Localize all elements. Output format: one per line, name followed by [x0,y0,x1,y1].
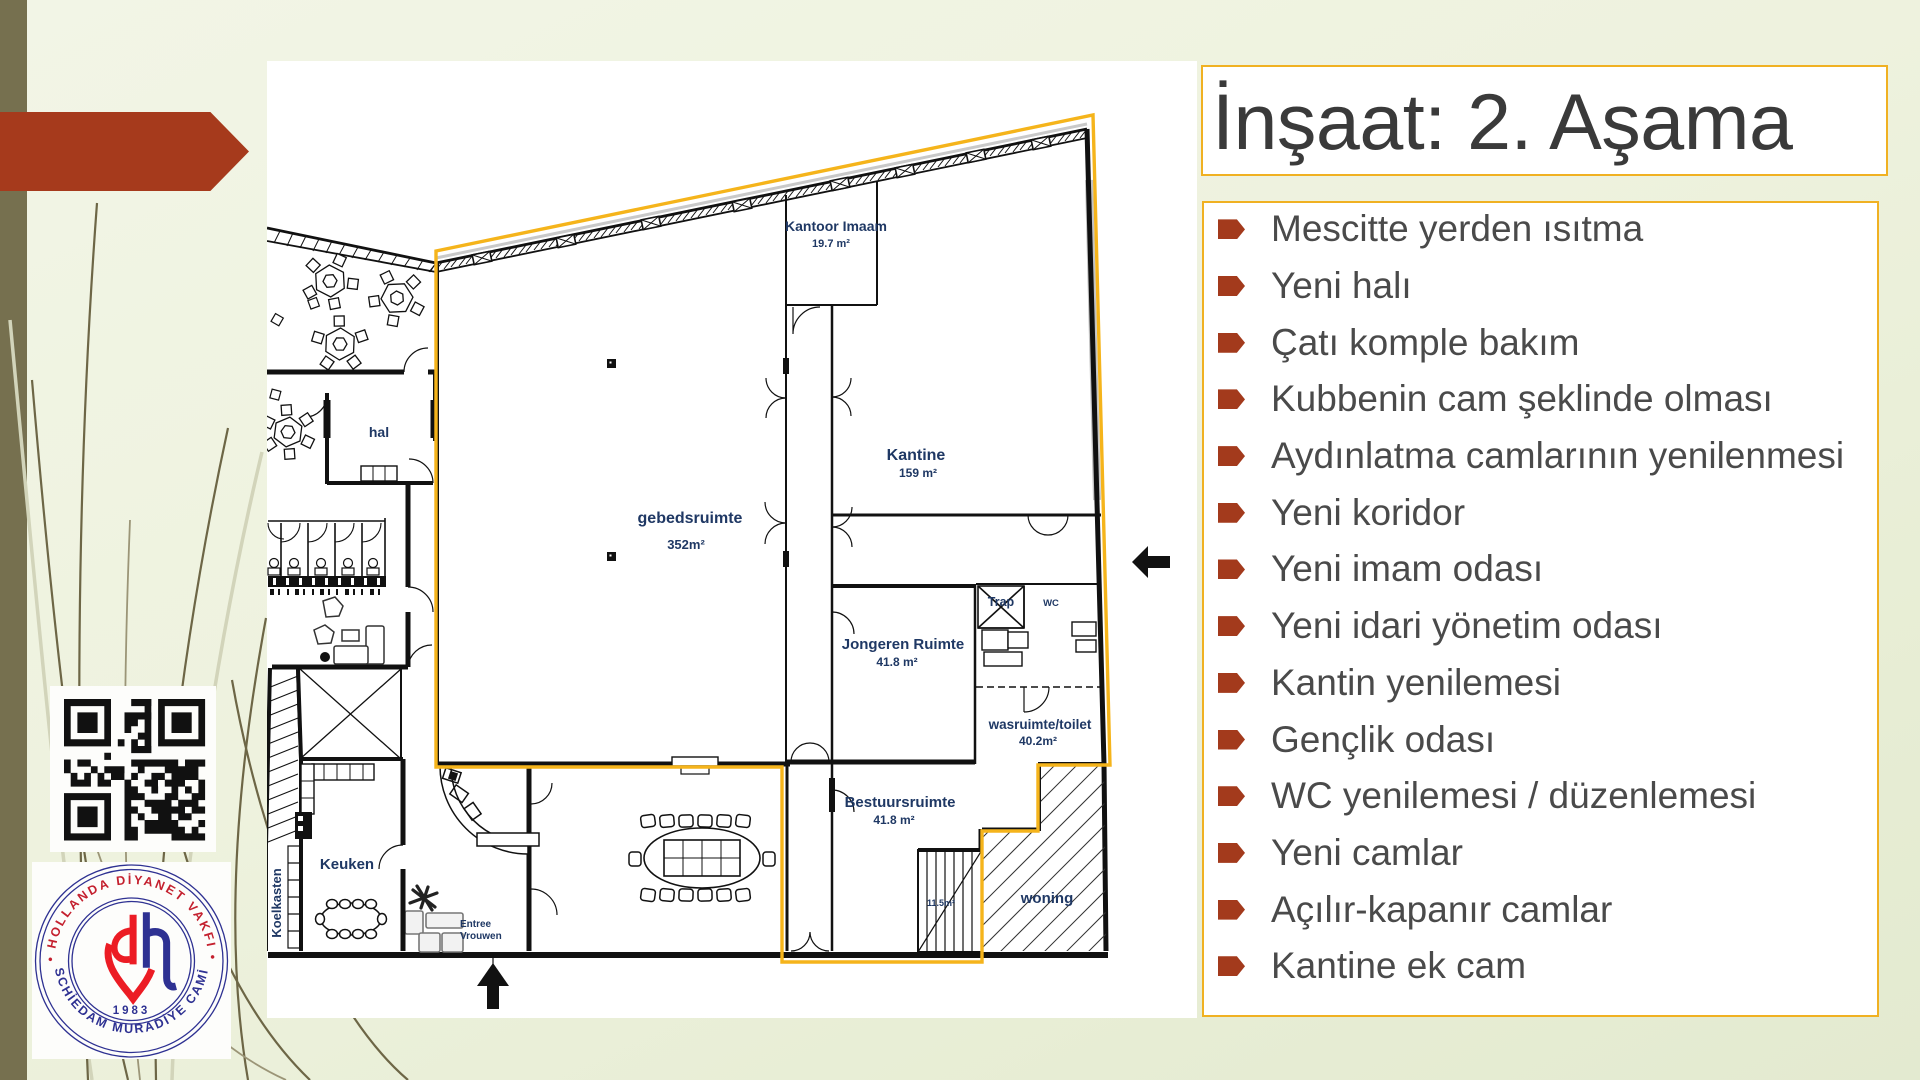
svg-text:Jongeren Ruimte: Jongeren Ruimte [842,636,965,653]
svg-text:40.2m²: 40.2m² [1019,734,1057,748]
svg-text:Kantoor Imaam: Kantoor Imaam [785,218,887,234]
svg-text:1983: 1983 [113,1005,151,1017]
svg-text:Vrouwen: Vrouwen [460,931,502,942]
svg-text:352m²: 352m² [667,537,705,552]
svg-text:hal: hal [369,424,389,440]
svg-text:Kantine: Kantine [887,447,946,464]
svg-text:Trap: Trap [988,595,1015,609]
svg-text:41.8 m²: 41.8 m² [873,813,914,827]
svg-text:woning: woning [1020,890,1074,907]
svg-text:WC: WC [1043,598,1059,609]
svg-text:wasruimte/toilet: wasruimte/toilet [988,717,1092,732]
svg-text:Keuken: Keuken [320,856,374,873]
svg-text:gebedsruimte: gebedsruimte [638,510,743,527]
svg-text:Koelkasten: Koelkasten [269,868,284,937]
svg-text:41.8 m²: 41.8 m² [876,655,917,669]
svg-text:159 m²: 159 m² [899,466,937,480]
svg-text:19.7 m²: 19.7 m² [812,238,850,250]
svg-text:Bestuursruimte: Bestuursruimte [845,794,956,811]
svg-text:11.5m²: 11.5m² [927,898,955,908]
svg-text:Entree: Entree [460,919,492,930]
